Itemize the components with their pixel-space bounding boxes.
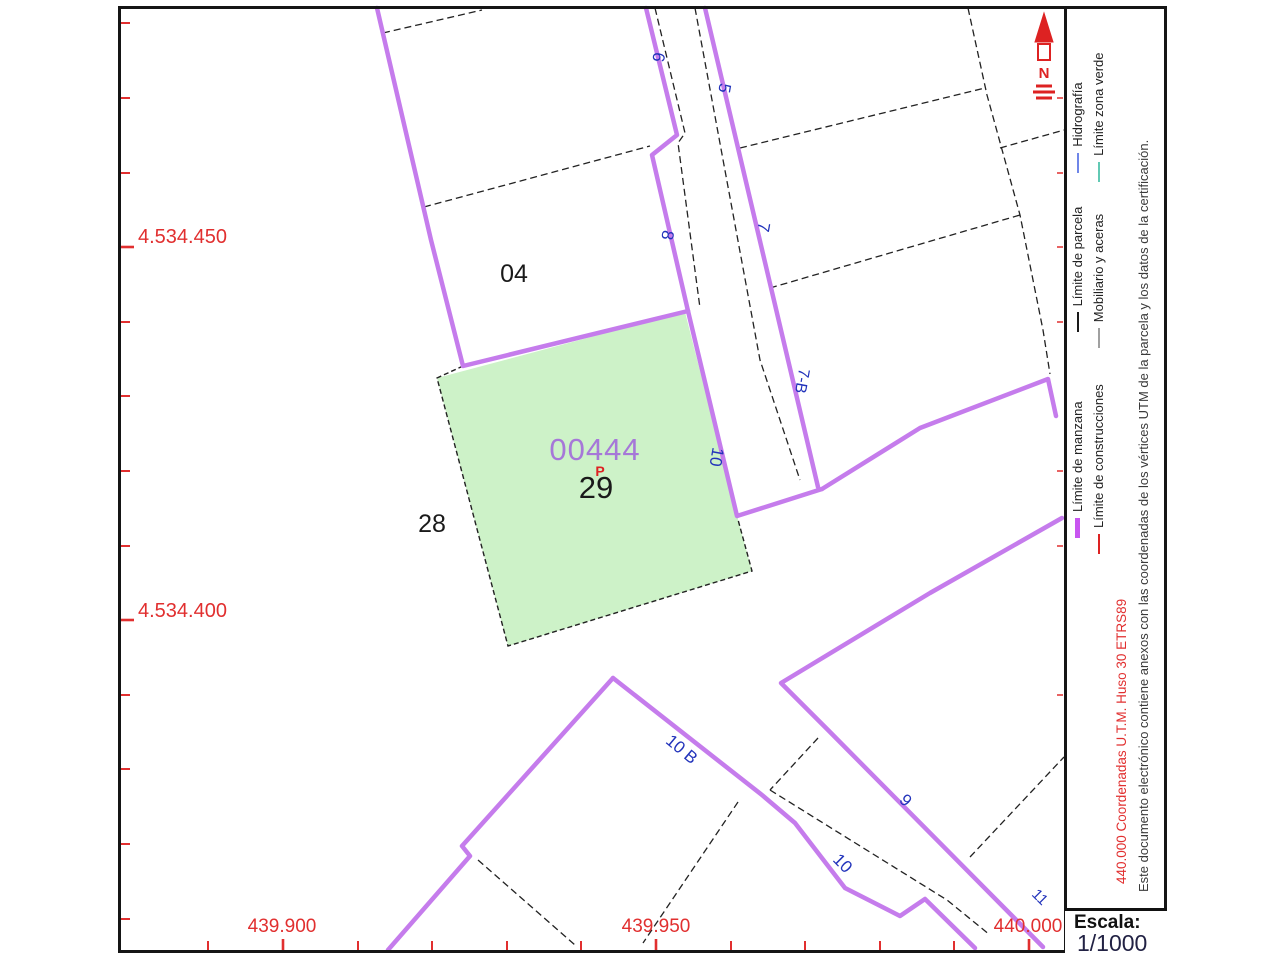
coord-label-north: 4.534.450 xyxy=(138,226,227,248)
legend-row-2: Límite de construcciones Mobiliario y ac… xyxy=(1091,52,1106,554)
legend-label: Límite de manzana xyxy=(1070,401,1085,512)
street-number: 7-B xyxy=(791,367,812,394)
certification-disclaimer: Este documento electrónico contiene anex… xyxy=(1136,140,1151,892)
manzana-line-swatch xyxy=(1075,518,1080,538)
street-number: 10 xyxy=(705,446,727,468)
parcel-label-28: 28 xyxy=(418,510,446,538)
legend-item-manzana: Límite de manzana xyxy=(1070,401,1085,538)
utm-coordinates-note: 440.000 Coordenadas U.T.M. Huso 30 ETRS8… xyxy=(1114,599,1129,884)
legend-row-1: Límite de manzana Límite de parcela Hidr… xyxy=(1070,82,1085,538)
mobiliario-line-swatch xyxy=(1098,328,1100,348)
coord-label-west: 439.900 xyxy=(248,916,317,937)
zona-verde-line-swatch xyxy=(1098,162,1100,182)
legend: Límite de manzana Límite de parcela Hidr… xyxy=(1070,10,1164,906)
coord-label-south: 4.534.400 xyxy=(138,600,227,622)
parcel-label-04: 04 xyxy=(500,260,528,288)
legend-label: Límite de construcciones xyxy=(1091,384,1106,528)
coord-label-mid: 439.950 xyxy=(622,916,691,937)
street-number: 5 xyxy=(714,82,734,95)
legend-label: Límite de parcela xyxy=(1070,207,1085,307)
parcel-flag-label: P xyxy=(595,463,604,479)
cadastral-map-page: 4.534.450 4.534.400 439.900 439.950 440.… xyxy=(0,0,1280,960)
hidrografia-line-swatch xyxy=(1077,153,1079,173)
legend-divider xyxy=(1064,9,1067,950)
scale-value: 1/1000 xyxy=(1074,932,1167,954)
scale-box: Escala: 1/1000 xyxy=(1065,908,1167,953)
legend-item-zona-verde: Límite zona verde xyxy=(1091,52,1106,181)
legend-item-construcciones: Límite de construcciones xyxy=(1091,384,1106,554)
legend-item-hidrografia: Hidrografía xyxy=(1070,82,1085,172)
parcela-line-swatch xyxy=(1077,312,1079,332)
street-number: 10 B xyxy=(662,731,701,768)
construcciones-line-swatch xyxy=(1098,534,1100,554)
legend-item-parcela: Límite de parcela xyxy=(1070,207,1085,333)
legend-label: Hidrografía xyxy=(1070,82,1085,146)
legend-label: Mobiliario y aceras xyxy=(1091,214,1106,322)
legend-item-mobiliario: Mobiliario y aceras xyxy=(1091,214,1106,348)
manzana-code-label: 00444 xyxy=(549,432,640,467)
legend-label: Límite zona verde xyxy=(1091,52,1106,155)
street-number: 8 xyxy=(657,229,677,242)
street-number: 6 xyxy=(648,51,668,64)
north-arrow-icon: N xyxy=(1033,13,1055,98)
street-number: 11 xyxy=(1028,886,1051,909)
coord-label-east: 440.000 xyxy=(994,916,1063,937)
north-letter: N xyxy=(1039,65,1050,82)
